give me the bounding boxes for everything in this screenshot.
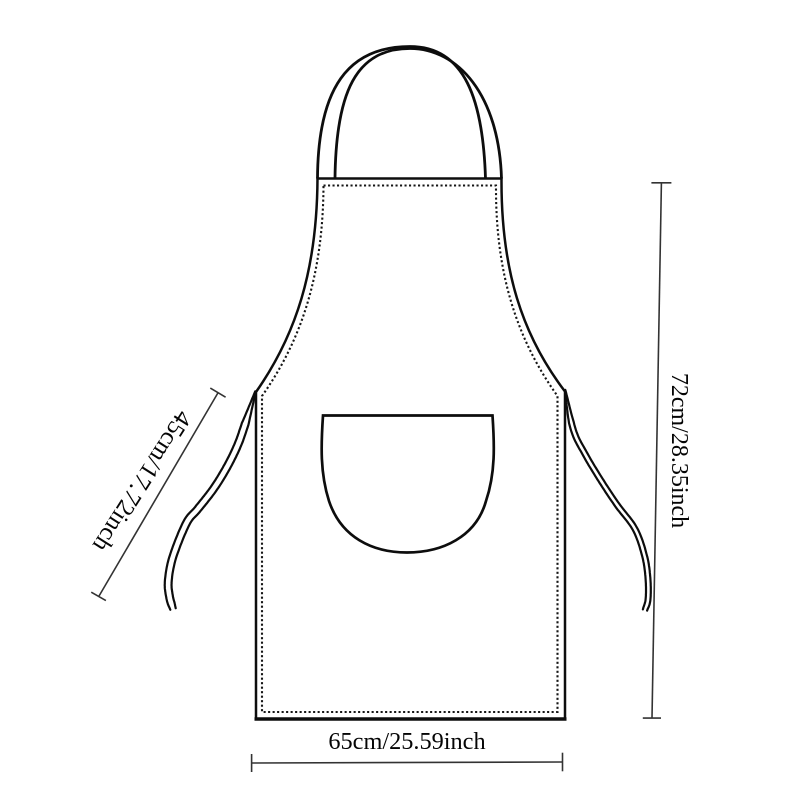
svg-text:65cm/25.59inch: 65cm/25.59inch <box>328 728 485 755</box>
svg-text:72cm/28.35inch: 72cm/28.35inch <box>666 373 692 528</box>
